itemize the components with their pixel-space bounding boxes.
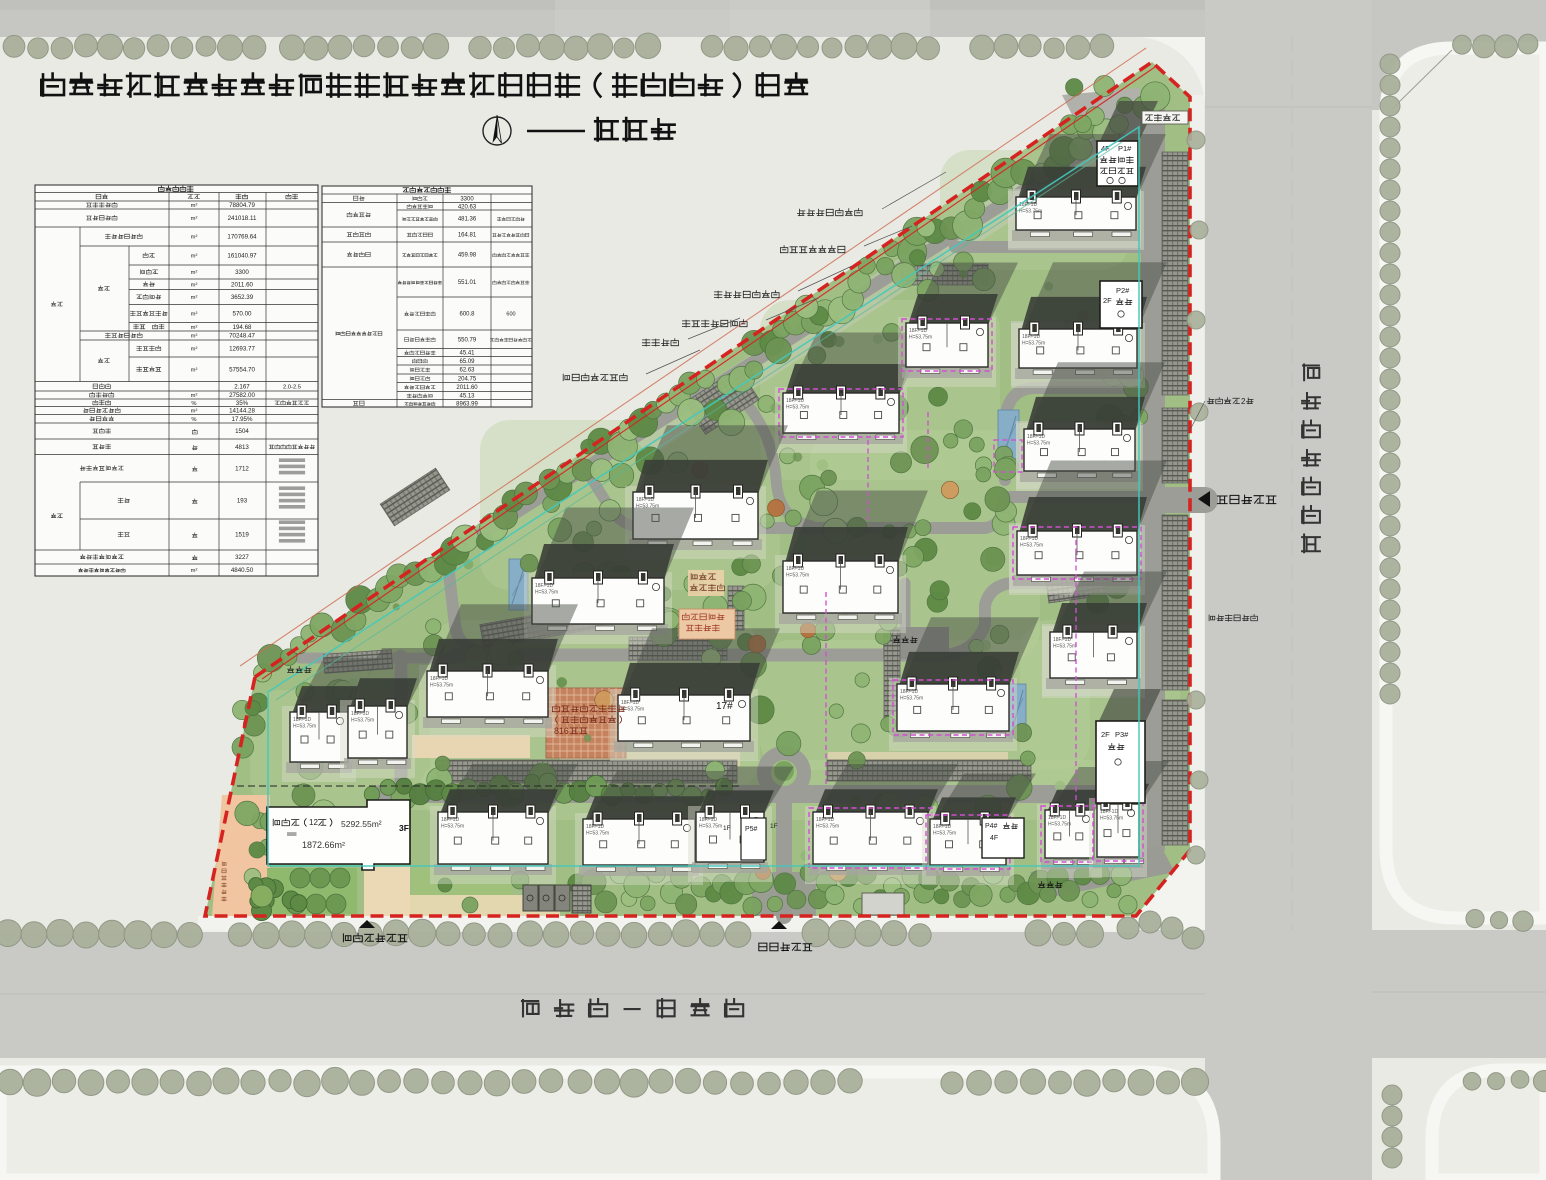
svg-text:18F/-1D: 18F/-1D <box>636 497 654 503</box>
svg-text:%: % <box>191 417 196 423</box>
svg-text:4F: 4F <box>990 835 998 842</box>
svg-text:H=53.75m: H=53.75m <box>1100 816 1123 822</box>
svg-text:H=53.75m: H=53.75m <box>441 824 464 830</box>
svg-text:18F/-1D: 18F/-1D <box>1022 334 1040 340</box>
svg-text:194.68: 194.68 <box>233 324 252 331</box>
svg-text:12693.77: 12693.77 <box>229 346 255 353</box>
svg-text:H=53.75m: H=53.75m <box>900 696 923 702</box>
svg-text:m²: m² <box>191 367 198 373</box>
svg-text:170769.64: 170769.64 <box>227 234 257 241</box>
svg-text:62.63: 62.63 <box>459 368 475 374</box>
svg-text:H=53.75m: H=53.75m <box>1053 644 1076 650</box>
svg-text:P5#: P5# <box>745 826 758 833</box>
svg-text:m²: m² <box>191 295 198 301</box>
svg-text:161040.97: 161040.97 <box>227 253 257 260</box>
svg-text:2F: 2F <box>1103 296 1112 305</box>
svg-text:550.79: 550.79 <box>458 337 477 343</box>
svg-text:m²: m² <box>191 393 198 399</box>
svg-text:H=53.75m: H=53.75m <box>816 824 839 830</box>
svg-text:m²: m² <box>191 203 198 209</box>
svg-text:18F/-1D: 18F/-1D <box>430 676 448 682</box>
svg-text:3652.39: 3652.39 <box>231 294 254 301</box>
svg-text:1504: 1504 <box>235 428 249 435</box>
svg-text:18F/-1D: 18F/-1D <box>786 566 804 572</box>
svg-text:18F/-1D: 18F/-1D <box>1053 637 1071 643</box>
svg-text:m²: m² <box>191 568 198 574</box>
svg-text:3300: 3300 <box>460 196 474 202</box>
svg-text:459.98: 459.98 <box>458 253 477 259</box>
svg-text:2: 2 <box>1241 397 1246 406</box>
svg-text:%: % <box>191 401 196 407</box>
svg-text:H=53.75m: H=53.75m <box>1020 543 1043 549</box>
svg-text:164.81: 164.81 <box>458 233 477 239</box>
svg-text:m²: m² <box>191 270 198 276</box>
svg-text:2.0-2.5: 2.0-2.5 <box>283 384 301 390</box>
svg-text:78804.79: 78804.79 <box>229 202 255 209</box>
svg-text:2011.60: 2011.60 <box>456 385 478 391</box>
svg-text:m²: m² <box>191 235 198 241</box>
svg-text:P3#: P3# <box>1115 730 1129 739</box>
svg-text:18F/-1D: 18F/-1D <box>586 824 604 830</box>
svg-text:H=53.75m: H=53.75m <box>535 590 558 596</box>
svg-text:18F/-1D: 18F/-1D <box>621 700 639 706</box>
svg-text:8963.99: 8963.99 <box>456 401 478 407</box>
svg-text:H=53.75m: H=53.75m <box>1027 441 1050 447</box>
svg-text:H=53.75m: H=53.75m <box>586 831 609 837</box>
svg-text:18F/-1D: 18F/-1D <box>1100 809 1118 815</box>
svg-text:5292.55m²: 5292.55m² <box>341 819 382 829</box>
svg-text:18F/-1D: 18F/-1D <box>786 398 804 404</box>
svg-text:1872.66m²: 1872.66m² <box>302 840 345 850</box>
svg-text:18F/-1D: 18F/-1D <box>933 824 951 830</box>
svg-text:1F: 1F <box>770 823 778 830</box>
svg-text:4813: 4813 <box>235 444 249 451</box>
svg-text:570.00: 570.00 <box>233 311 252 318</box>
svg-text:18F/-1D: 18F/-1D <box>1020 536 1038 542</box>
svg-text:m²: m² <box>191 347 198 353</box>
svg-text:H=53.75m: H=53.75m <box>351 718 374 724</box>
svg-text:3300: 3300 <box>235 269 249 276</box>
svg-text:18F/-1D: 18F/-1D <box>1027 434 1045 440</box>
svg-text:m²: m² <box>191 254 198 260</box>
svg-text:3227: 3227 <box>235 554 249 561</box>
svg-text:18F/-1D: 18F/-1D <box>1048 815 1066 821</box>
svg-text:193: 193 <box>237 498 248 505</box>
svg-text:1F: 1F <box>723 825 731 832</box>
svg-text:17.95%: 17.95% <box>232 416 253 423</box>
svg-text:H=53.75m: H=53.75m <box>786 405 809 411</box>
svg-text:1519: 1519 <box>235 532 249 539</box>
svg-text:551.01: 551.01 <box>458 280 477 286</box>
svg-text:m²: m² <box>191 282 198 288</box>
svg-text:H=53.75m: H=53.75m <box>1022 341 1045 347</box>
svg-text:m²: m² <box>191 334 198 340</box>
svg-text:m²: m² <box>191 325 198 331</box>
svg-text:35%: 35% <box>236 400 249 407</box>
svg-text:18F/-1D: 18F/-1D <box>293 717 311 723</box>
svg-text:P4#: P4# <box>985 823 998 830</box>
svg-text:420.63: 420.63 <box>458 204 477 210</box>
svg-text:600: 600 <box>506 312 515 318</box>
svg-text:14144.28: 14144.28 <box>229 408 255 415</box>
svg-text:H=53.75m: H=53.75m <box>1019 209 1042 215</box>
svg-text:481.36: 481.36 <box>458 217 477 223</box>
svg-text:3F: 3F <box>399 823 409 833</box>
svg-text:70248.47: 70248.47 <box>229 333 255 340</box>
svg-text:45.41: 45.41 <box>459 351 475 357</box>
svg-text:H=53.75m: H=53.75m <box>933 831 956 837</box>
svg-text:65.09: 65.09 <box>459 359 475 365</box>
svg-text:P2#: P2# <box>1116 286 1130 295</box>
svg-text:1712: 1712 <box>235 465 249 472</box>
svg-text:204.75: 204.75 <box>458 376 477 382</box>
svg-text:18F/-1D: 18F/-1D <box>535 583 553 589</box>
svg-text:27582.00: 27582.00 <box>229 392 255 399</box>
svg-text:H=53.75m: H=53.75m <box>699 824 722 830</box>
svg-text:2011.60: 2011.60 <box>231 281 253 288</box>
svg-text:241018.11: 241018.11 <box>228 215 257 222</box>
svg-text:18F/-1D: 18F/-1D <box>441 817 459 823</box>
svg-text:18F/-1D: 18F/-1D <box>351 711 369 717</box>
svg-text:18F/-1D: 18F/-1D <box>900 689 918 695</box>
svg-text:12: 12 <box>309 818 318 827</box>
svg-text:2F: 2F <box>1101 730 1110 739</box>
svg-text:H=53.75m: H=53.75m <box>909 335 932 341</box>
svg-text:17#: 17# <box>716 701 733 712</box>
svg-text:2.167: 2.167 <box>234 383 250 390</box>
svg-text:H=53.75m: H=53.75m <box>786 573 809 579</box>
svg-text:4840.50: 4840.50 <box>231 567 254 574</box>
svg-text:600.8: 600.8 <box>459 312 475 318</box>
svg-text:P1#: P1# <box>1118 144 1132 153</box>
svg-text:H=53.75m: H=53.75m <box>1048 822 1071 828</box>
svg-text:57554.70: 57554.70 <box>229 366 255 373</box>
svg-text:18F/-1D: 18F/-1D <box>699 817 717 823</box>
svg-text:H=53.75m: H=53.75m <box>293 724 316 730</box>
svg-text:m²: m² <box>191 216 198 222</box>
svg-text:H=53.75m: H=53.75m <box>430 683 453 689</box>
svg-text:18F/-1D: 18F/-1D <box>816 817 834 823</box>
svg-text:816: 816 <box>554 726 569 736</box>
svg-text:m²: m² <box>191 312 198 318</box>
svg-text:m²: m² <box>191 409 198 415</box>
svg-text:18F/-1D: 18F/-1D <box>909 328 927 334</box>
svg-text:45.13: 45.13 <box>459 394 475 400</box>
